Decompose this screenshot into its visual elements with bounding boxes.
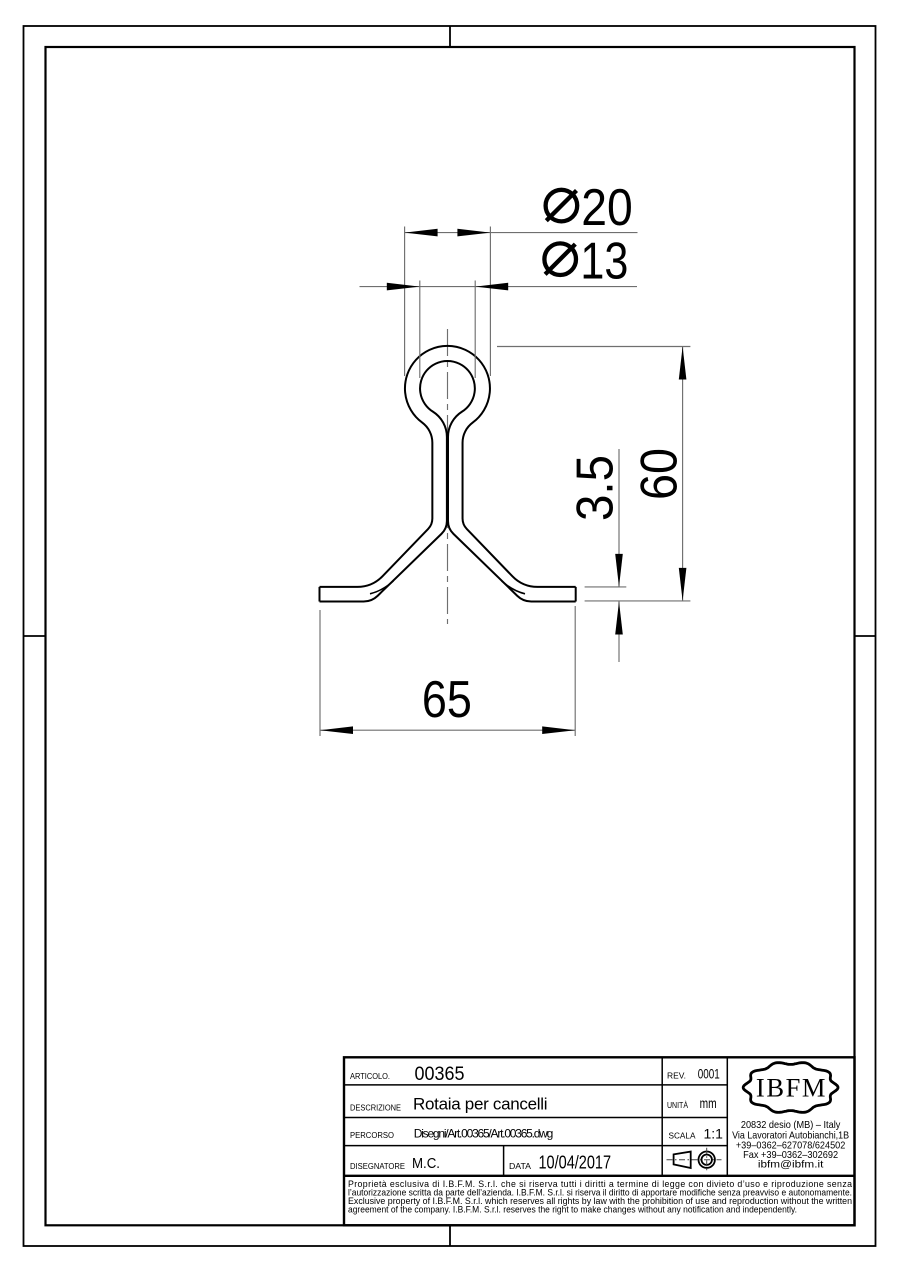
svg-text:DISEGNATORE: DISEGNATORE [350, 1161, 405, 1171]
svg-text:Rotaia per cancelli: Rotaia per cancelli [413, 1095, 548, 1114]
svg-text:60: 60 [631, 448, 689, 500]
svg-text:UNITÀ: UNITÀ [667, 1100, 688, 1110]
svg-text:ibfm@ibfm.it: ibfm@ibfm.it [758, 1159, 824, 1171]
svg-text:1:1: 1:1 [704, 1126, 724, 1142]
svg-text:agreement of the company. I.B.: agreement of the company. I.B.F.M. S.r.l… [348, 1205, 797, 1215]
svg-text:REV.: REV. [667, 1071, 686, 1081]
svg-text:DESCRIZIONE: DESCRIZIONE [350, 1103, 401, 1113]
svg-text:M.C.: M.C. [412, 1155, 440, 1172]
svg-text:mm: mm [700, 1096, 717, 1111]
svg-text:0001: 0001 [698, 1067, 720, 1082]
svg-text:13: 13 [580, 232, 628, 290]
svg-text:65: 65 [422, 671, 472, 729]
svg-text:10/04/2017: 10/04/2017 [539, 1153, 612, 1173]
svg-text:SCALA: SCALA [669, 1131, 696, 1141]
svg-text:00365: 00365 [415, 1063, 465, 1085]
svg-text:Disegni/Art.00365/Art.00365.dw: Disegni/Art.00365/Art.00365.dwg [414, 1127, 554, 1141]
svg-text:20: 20 [581, 179, 633, 237]
svg-text:ARTICOLO.: ARTICOLO. [350, 1071, 390, 1081]
svg-text:DATA: DATA [509, 1161, 531, 1171]
svg-text:IBFM: IBFM [756, 1073, 827, 1103]
svg-text:PERCORSO: PERCORSO [350, 1130, 394, 1140]
svg-text:3.5: 3.5 [567, 455, 625, 521]
